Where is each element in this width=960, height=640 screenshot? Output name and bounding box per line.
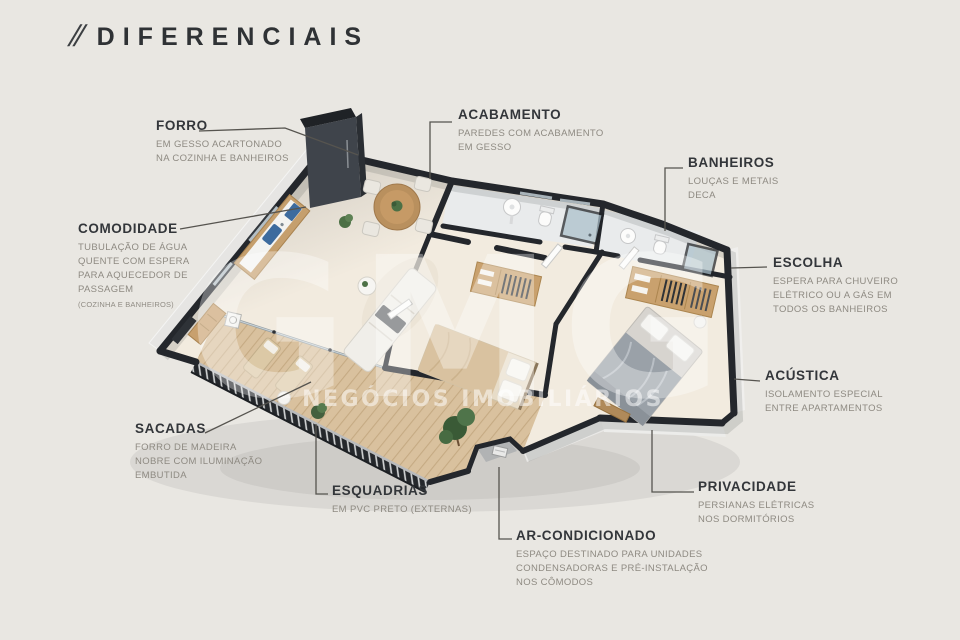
feature-line: PAREDES COM ACABAMENTO	[458, 127, 604, 141]
feature-heading: ESQUADRIAS	[332, 483, 472, 498]
feature-line: LOUÇAS E METAIS	[688, 175, 779, 189]
watermark: GMG NEGÓCIOS IMOBILIÁRIOS	[188, 215, 732, 442]
feature-line: EM PVC PRETO (EXTERNAS)	[332, 503, 472, 517]
feature-line: NOS DORMITÓRIOS	[698, 513, 814, 527]
feature-line: NOBRE COM ILUMINAÇÃO	[135, 455, 262, 469]
feature-heading: SACADAS	[135, 421, 262, 436]
floorplan-illustration: GMG NEGÓCIOS IMOBILIÁRIOS	[0, 0, 960, 640]
feature-line: NA COZINHA E BANHEIROS	[156, 152, 289, 166]
feature-label-privacidade: PRIVACIDADE PERSIANAS ELÉTRICAS NOS DORM…	[698, 479, 814, 527]
feature-line: ESPERA PARA CHUVEIRO	[773, 275, 898, 289]
feature-label-banheiros: BANHEIROS LOUÇAS E METAIS DECA	[688, 155, 779, 203]
feature-line: DECA	[688, 189, 779, 203]
feature-heading: FORRO	[156, 118, 289, 133]
feature-note: (COZINHA E BANHEIROS)	[78, 300, 190, 309]
feature-label-forro: FORRO EM GESSO ACARTONADO NA COZINHA E B…	[156, 118, 289, 166]
feature-line: ESPAÇO DESTINADO PARA UNIDADES	[516, 548, 708, 562]
feature-heading: AR-CONDICIONADO	[516, 528, 708, 543]
feature-label-comodidade: COMODIDADE TUBULAÇÃO DE ÁGUA QUENTE COM …	[78, 221, 190, 309]
feature-label-acustica: ACÚSTICA ISOLAMENTO ESPECIAL ENTRE APART…	[765, 368, 883, 416]
feature-label-escolha: ESCOLHA ESPERA PARA CHUVEIRO ELÉTRICO OU…	[773, 255, 898, 317]
feature-line: NOS CÔMODOS	[516, 576, 708, 590]
watermark-subtitle: NEGÓCIOS IMOBILIÁRIOS	[302, 386, 664, 412]
feature-heading: COMODIDADE	[78, 221, 190, 236]
feature-line: ISOLAMENTO ESPECIAL	[765, 388, 883, 402]
feature-heading: ACABAMENTO	[458, 107, 604, 122]
feature-line: EMBUTIDA	[135, 469, 262, 483]
feature-line: FORRO DE MADEIRA	[135, 441, 262, 455]
feature-line: TUBULAÇÃO DE ÁGUA	[78, 241, 190, 255]
feature-heading: BANHEIROS	[688, 155, 779, 170]
feature-label-acabamento: ACABAMENTO PAREDES COM ACABAMENTO EM GES…	[458, 107, 604, 155]
feature-line: ELÉTRICO OU A GÁS EM	[773, 289, 898, 303]
feature-line: EM GESSO ACARTONADO	[156, 138, 289, 152]
feature-line: QUENTE COM ESPERA	[78, 255, 190, 269]
feature-line: TODOS OS BANHEIROS	[773, 303, 898, 317]
kitchen-cabinet-tower	[300, 108, 367, 208]
feature-line: PASSAGEM	[78, 283, 190, 297]
feature-line: PARA AQUECEDOR DE	[78, 269, 190, 283]
feature-heading: ESCOLHA	[773, 255, 898, 270]
feature-line: EM GESSO	[458, 141, 604, 155]
feature-heading: PRIVACIDADE	[698, 479, 814, 494]
leader-acabamento	[430, 122, 452, 179]
feature-line: ENTRE APARTAMENTOS	[765, 402, 883, 416]
feature-label-ar-condicionado: AR-CONDICIONADO ESPAÇO DESTINADO PARA UN…	[516, 528, 708, 590]
feature-heading: ACÚSTICA	[765, 368, 883, 383]
feature-label-sacadas: SACADAS FORRO DE MADEIRA NOBRE COM ILUMI…	[135, 421, 262, 483]
feature-label-esquadrias: ESQUADRIAS EM PVC PRETO (EXTERNAS)	[332, 483, 472, 517]
feature-line: CONDENSADORAS E PRÉ-INSTALAÇÃO	[516, 562, 708, 576]
feature-line: PERSIANAS ELÉTRICAS	[698, 499, 814, 513]
marketing-page: // DIFERENCIAIS	[0, 0, 960, 640]
